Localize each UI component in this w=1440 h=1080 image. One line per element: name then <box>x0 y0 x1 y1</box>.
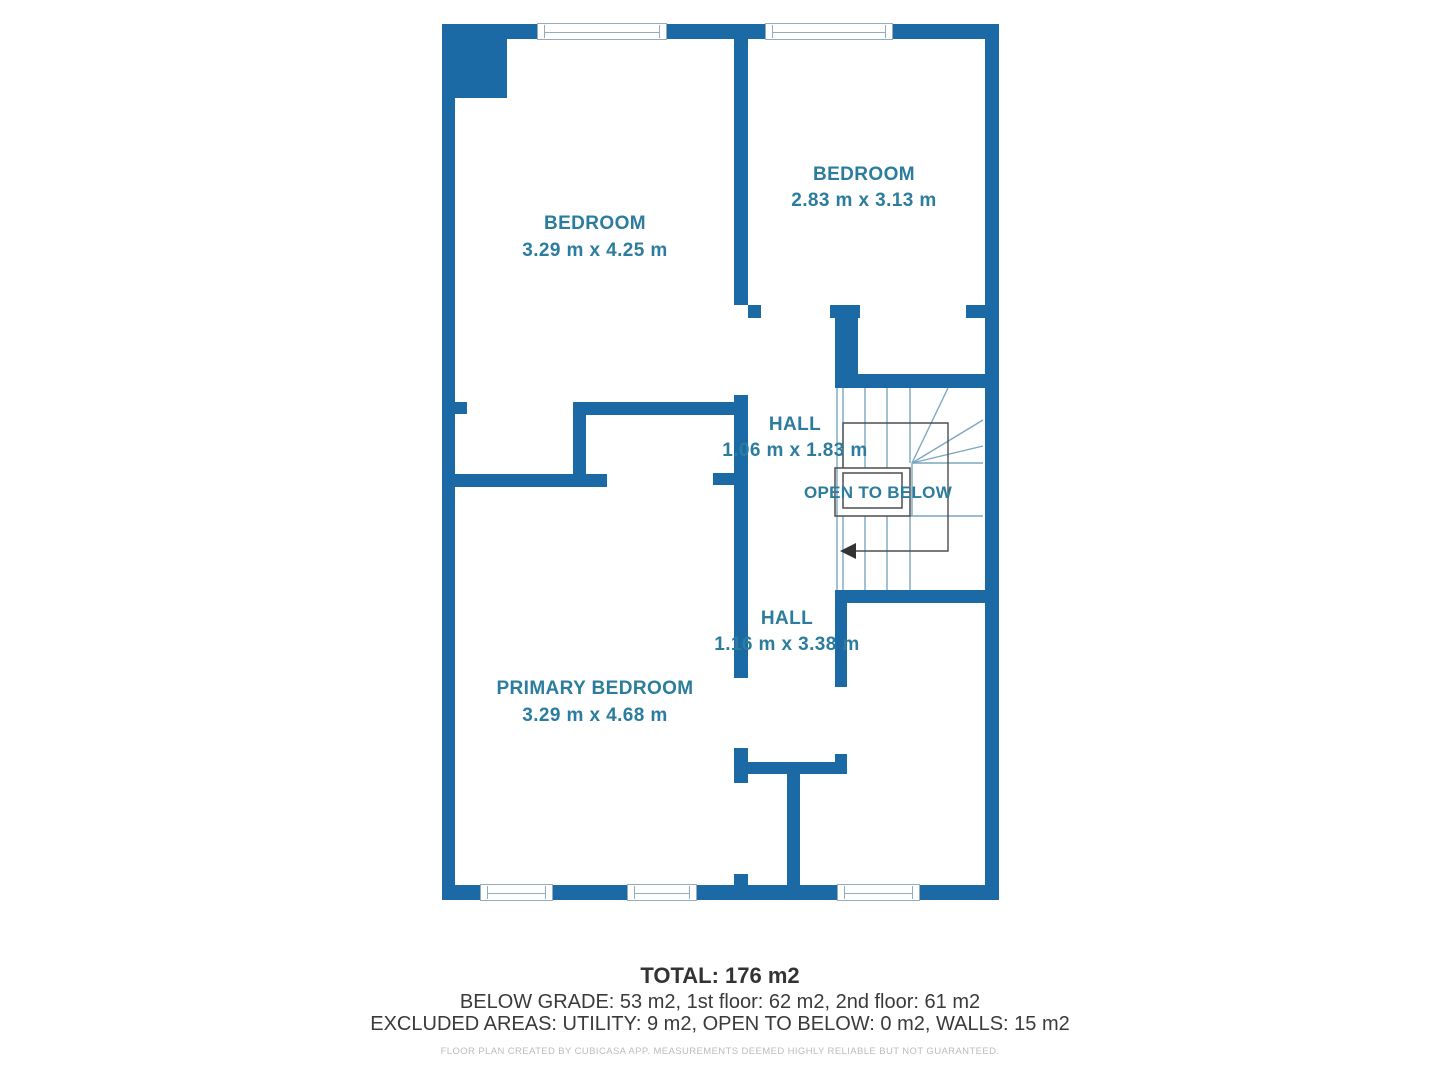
room-dims-hall-lower: 1.16 m x 3.38 m <box>714 634 859 656</box>
window <box>837 884 920 901</box>
window-cap <box>634 886 635 899</box>
wall-bedroom-bottom <box>573 402 748 415</box>
room-label-primary-bedroom: PRIMARY BEDROOM <box>496 678 693 700</box>
window-glass-line <box>487 893 546 894</box>
window <box>480 884 553 901</box>
wall-door-jamb <box>835 754 847 762</box>
wall-left <box>442 24 455 900</box>
wall-bedroom-divider <box>734 38 748 305</box>
room-dims-bedroom-right: 2.83 m x 3.13 m <box>791 190 936 212</box>
window <box>765 23 893 40</box>
floor-breakdown-text: BELOW GRADE: 53 m2, 1st floor: 62 m2, 2n… <box>0 991 1440 1014</box>
window-glass-line <box>772 32 886 33</box>
room-dims-hall-upper: 1.06 m x 1.83 m <box>722 440 867 462</box>
window-cap <box>545 886 546 899</box>
wall-corner-block <box>442 24 507 98</box>
room-dims-primary-bedroom: 3.29 m x 4.68 m <box>522 705 667 727</box>
room-label-hall-lower: HALL <box>761 608 813 630</box>
wall-closet-right <box>573 402 586 480</box>
wall-hall-stair <box>835 318 858 376</box>
wall-door-jamb <box>966 305 985 318</box>
floor-plan: BEDROOM 3.29 m x 4.25 m BEDROOM 2.83 m x… <box>0 0 1440 960</box>
room-label-bedroom-right: BEDROOM <box>813 164 915 186</box>
wall-door-jamb <box>734 874 748 885</box>
room-label-hall-upper: HALL <box>769 414 821 436</box>
wall-tee-horizontal <box>734 762 847 774</box>
window-cap <box>912 886 913 899</box>
wall-door-jamb <box>455 402 467 414</box>
open-to-below-label: OPEN TO BELOW <box>804 483 952 503</box>
total-area-text: TOTAL: 176 m2 <box>0 963 1440 989</box>
window <box>537 23 667 40</box>
window <box>627 884 697 901</box>
disclaimer-text: FLOOR PLAN CREATED BY CUBICASA APP. MEAS… <box>0 1046 1440 1057</box>
window-cap <box>885 25 886 38</box>
window-cap <box>844 886 845 899</box>
wall-tee-vertical <box>787 774 800 885</box>
wall-closet-bottom <box>443 474 607 487</box>
window-cap <box>659 25 660 38</box>
window-glass-line <box>544 32 660 33</box>
window-cap <box>772 25 773 38</box>
wall-door-jamb <box>748 305 761 318</box>
wall-door-jamb <box>713 473 734 485</box>
window-cap <box>689 886 690 899</box>
room-label-bedroom-left: BEDROOM <box>544 213 646 235</box>
wall-door-jamb <box>830 305 860 318</box>
room-dims-bedroom-left: 3.29 m x 4.25 m <box>522 240 667 262</box>
window-glass-line <box>844 893 913 894</box>
wall-top <box>442 24 998 39</box>
excluded-areas-text: EXCLUDED AREAS: UTILITY: 9 m2, OPEN TO B… <box>0 1013 1440 1036</box>
window-cap <box>544 25 545 38</box>
window-glass-line <box>634 893 690 894</box>
window-cap <box>487 886 488 899</box>
